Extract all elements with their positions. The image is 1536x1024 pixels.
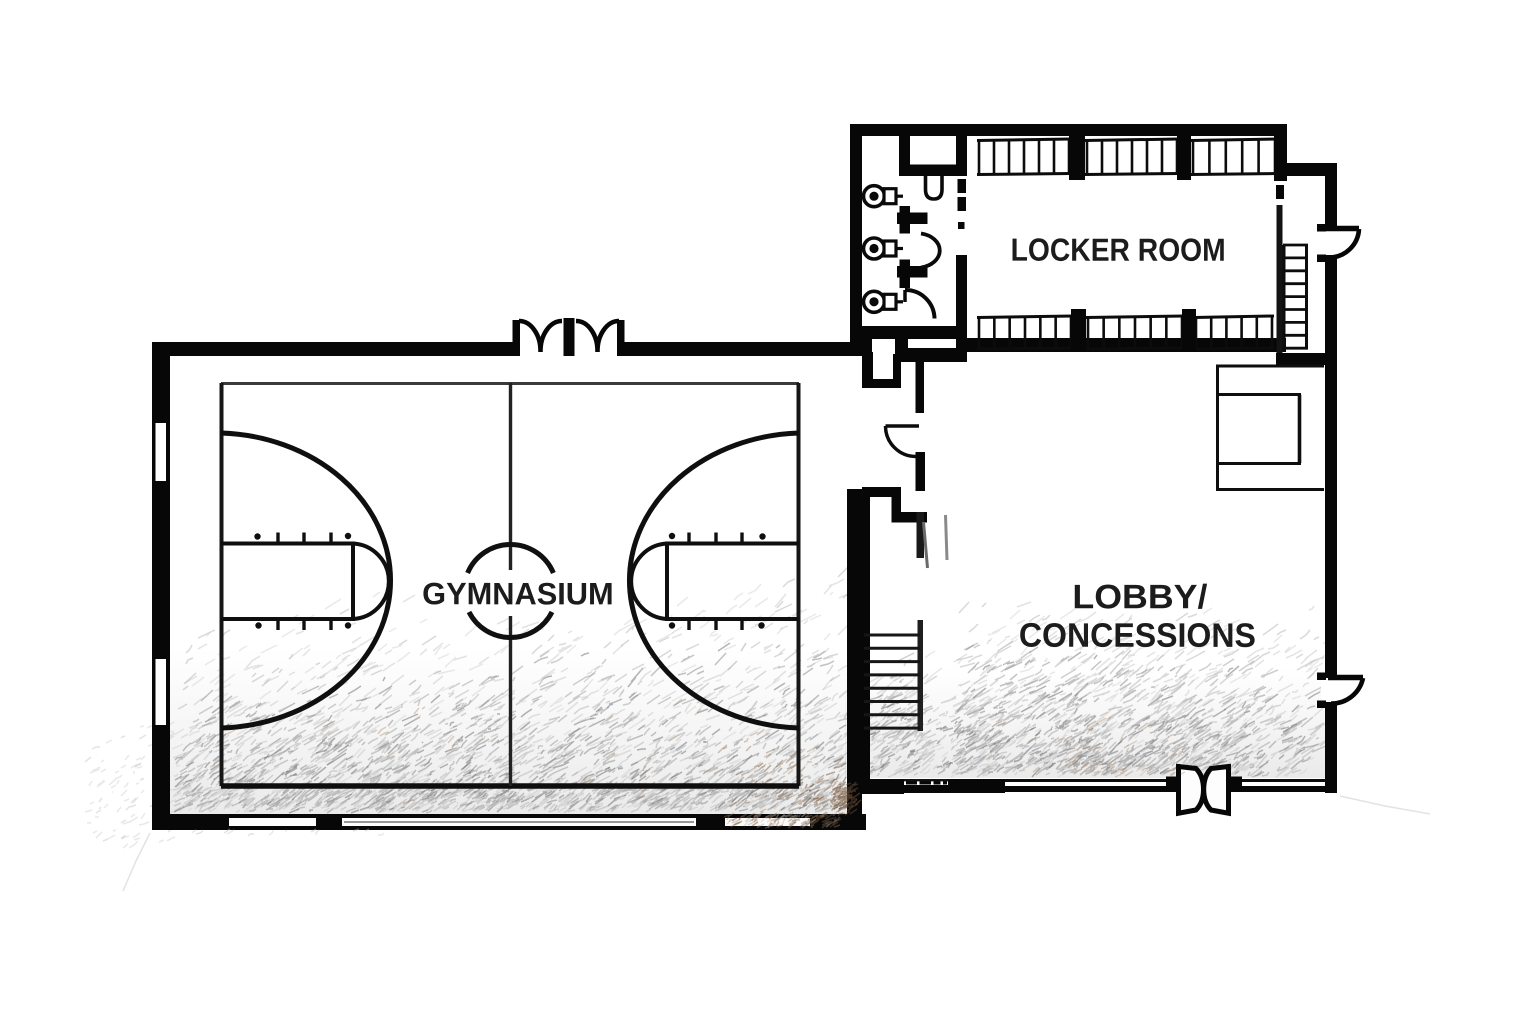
svg-text:GYMNASIUM: GYMNASIUM	[422, 576, 614, 611]
svg-text:CONCESSIONS: CONCESSIONS	[1019, 617, 1256, 655]
svg-text:LOBBY/: LOBBY/	[1072, 578, 1208, 616]
svg-text:LOCKER ROOM: LOCKER ROOM	[1011, 232, 1226, 268]
